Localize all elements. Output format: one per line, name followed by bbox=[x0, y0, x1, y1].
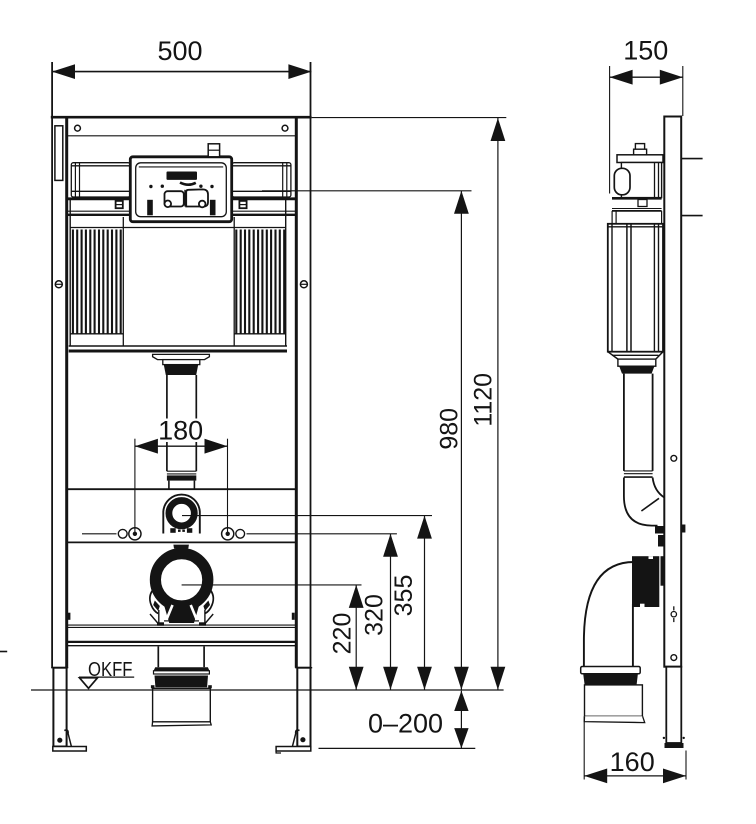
svg-text:TECE: TECE bbox=[169, 171, 195, 180]
svg-text:980: 980 bbox=[435, 408, 463, 450]
svg-text:150: 150 bbox=[623, 36, 668, 66]
svg-text:355: 355 bbox=[390, 575, 418, 617]
svg-text:500: 500 bbox=[157, 36, 202, 66]
svg-text:1120: 1120 bbox=[469, 373, 497, 427]
svg-text:180: 180 bbox=[158, 415, 203, 445]
svg-text:320: 320 bbox=[360, 594, 388, 636]
svg-text:160: 160 bbox=[610, 747, 655, 777]
svg-text:0–200: 0–200 bbox=[368, 709, 443, 739]
svg-text:220: 220 bbox=[328, 613, 356, 655]
